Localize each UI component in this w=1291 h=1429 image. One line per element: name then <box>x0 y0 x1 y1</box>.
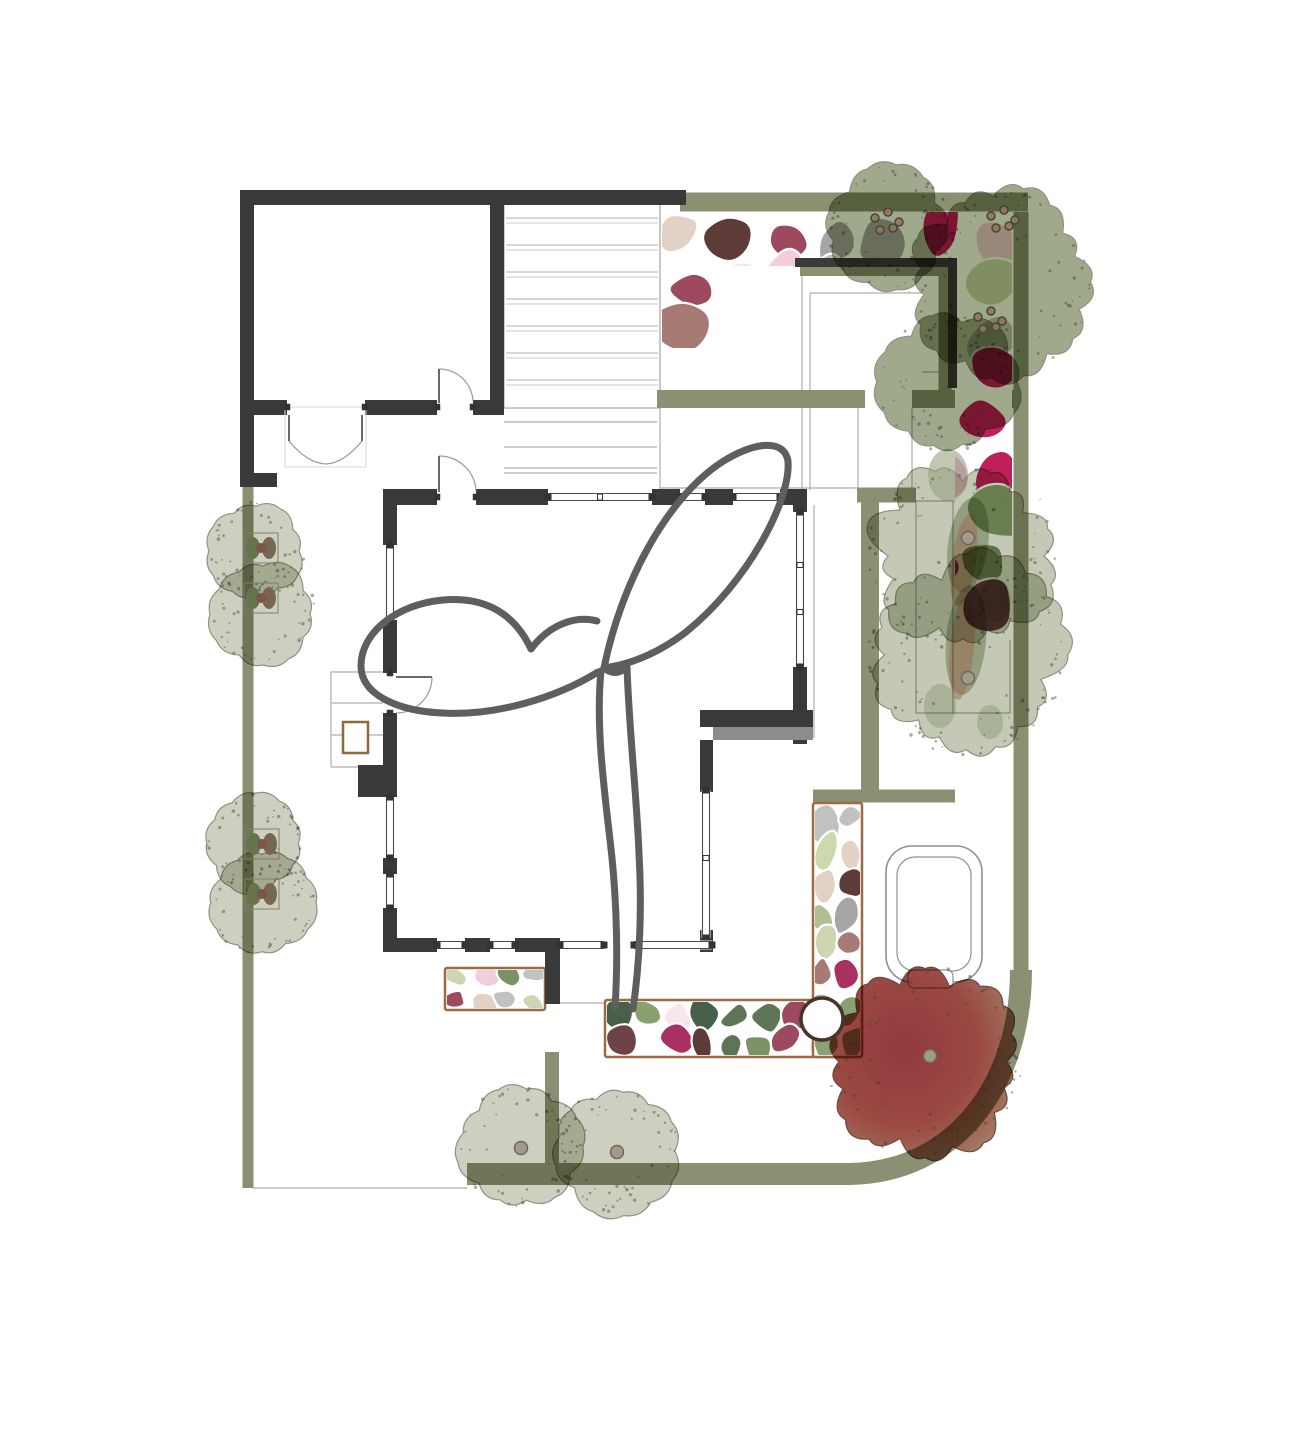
tree-speckle <box>868 666 871 669</box>
tree-speckle <box>964 430 966 432</box>
pebble <box>706 405 762 449</box>
shrub-icon-dot <box>256 593 266 603</box>
window-post <box>702 494 709 501</box>
tree-speckle <box>1053 315 1055 317</box>
tree-speckle <box>904 330 907 333</box>
tree-speckle <box>885 597 888 600</box>
tree-speckle <box>839 260 841 262</box>
tree-speckle <box>960 328 962 330</box>
tree-speckle <box>968 443 972 447</box>
tree-speckle <box>931 477 934 480</box>
pebble <box>815 444 871 490</box>
tree-speckle <box>1015 1056 1018 1059</box>
pebble <box>721 263 773 321</box>
window-post <box>730 494 737 501</box>
tree-speckle <box>904 388 906 390</box>
tree-speckle <box>1008 717 1010 719</box>
tree-speckle <box>232 652 235 655</box>
tree-speckle <box>301 888 303 890</box>
tree-speckle <box>616 1096 618 1098</box>
tree-speckle <box>1022 575 1025 578</box>
tree-speckle <box>508 1202 510 1204</box>
pebble <box>665 410 699 448</box>
tree-speckle <box>894 173 897 176</box>
tree-speckle <box>280 527 282 529</box>
tree-speckle <box>227 581 230 584</box>
tree-speckle <box>974 341 977 344</box>
tree-speckle <box>298 622 300 624</box>
tree-speckle <box>643 1111 645 1113</box>
pebble <box>745 1036 771 1063</box>
tree-speckle <box>984 1122 987 1125</box>
tree-speckle <box>1032 604 1034 606</box>
tree-speckle <box>260 867 263 870</box>
tree-speckle <box>939 210 941 212</box>
tree-speckle <box>998 1037 1000 1039</box>
tree-speckle <box>922 195 925 198</box>
tree-speckle <box>297 593 300 596</box>
tree-speckle <box>1048 612 1050 614</box>
tree-speckle <box>302 594 304 596</box>
tree-speckle <box>896 522 899 525</box>
tree-speckle <box>869 569 871 571</box>
tree-speckle <box>958 474 961 477</box>
tree-speckle <box>501 1092 504 1095</box>
pebble <box>671 547 718 591</box>
tree-speckle <box>956 1130 958 1132</box>
wall <box>240 190 254 487</box>
pebble <box>810 590 867 633</box>
shrub-icon-dot <box>257 839 267 849</box>
tree-speckle <box>939 477 941 479</box>
tree-speckle <box>1055 233 1058 236</box>
tree-speckle <box>272 816 274 818</box>
tree-speckle <box>869 670 872 673</box>
tree-speckle <box>994 1084 996 1086</box>
tree-speckle <box>277 815 280 818</box>
tree-speckle <box>481 1098 484 1101</box>
tree-canopy <box>830 967 1016 1161</box>
tree-speckle <box>975 488 978 491</box>
tree-speckle <box>1052 356 1055 359</box>
tree-speckle <box>289 823 291 825</box>
tree-speckle <box>950 1131 952 1133</box>
tree-speckle <box>591 1108 594 1111</box>
tree-speckle <box>929 414 932 417</box>
tree-speckle <box>631 1187 634 1190</box>
tree-speckle <box>922 735 925 738</box>
tree-speckle <box>934 740 937 743</box>
tree-speckle <box>564 1175 567 1178</box>
canopy-tree-path <box>599 671 616 1007</box>
tree-speckle <box>469 1114 471 1116</box>
tree-speckle <box>980 558 983 561</box>
window-post <box>434 404 441 411</box>
tree-speckle <box>605 1205 607 1207</box>
tree-speckle <box>1010 192 1012 194</box>
tree-speckle <box>218 535 220 537</box>
tree-speckle <box>229 622 231 624</box>
tree-speckle <box>296 856 299 859</box>
berry-dot <box>987 307 995 315</box>
tree-speckle <box>1013 600 1016 603</box>
wall <box>383 713 397 767</box>
tree-speckle <box>992 343 995 346</box>
tree-speckle <box>948 470 949 471</box>
tree-speckle <box>983 1088 986 1091</box>
tree-speckle <box>867 1068 869 1070</box>
garden-plan-canvas <box>0 0 1291 1429</box>
tree-speckle <box>233 612 236 615</box>
tree-speckle <box>220 591 222 593</box>
tree-speckle <box>909 733 912 736</box>
tree-trunk-dot <box>962 672 975 685</box>
tree-speckle <box>970 344 973 347</box>
tree-speckle <box>901 483 903 485</box>
tree-speckle <box>964 566 967 569</box>
window-post <box>703 787 710 794</box>
window-post <box>387 871 394 878</box>
tree-speckle <box>922 289 924 291</box>
tree-speckle <box>871 1073 872 1074</box>
tree-speckle <box>975 1129 978 1132</box>
tree-speckle <box>965 1002 968 1005</box>
window-post <box>387 670 394 677</box>
tree-speckle <box>872 646 875 649</box>
tree-speckle <box>939 426 943 430</box>
tree-speckle <box>969 576 970 577</box>
tree-speckle <box>1005 500 1006 501</box>
tree-speckle <box>308 619 311 622</box>
tree-speckle <box>299 870 302 873</box>
tree-speckle <box>256 503 258 505</box>
tree-speckle <box>1039 336 1040 337</box>
tree-speckle <box>1046 550 1049 553</box>
tree-speckle <box>1039 498 1040 499</box>
tree-speckle <box>923 410 925 412</box>
tree-speckle <box>829 244 832 247</box>
window-post <box>545 494 552 501</box>
tree-speckle <box>921 698 923 700</box>
tree-speckle <box>631 1118 633 1120</box>
pebble <box>719 307 768 356</box>
tree-speckle <box>1088 284 1090 286</box>
canopy-tree-path <box>604 445 788 668</box>
tree-speckle <box>956 318 960 322</box>
tree-speckle <box>242 936 244 938</box>
tree-speckle <box>274 938 276 940</box>
tree-speckle <box>917 1129 920 1132</box>
tree-speckle <box>875 581 876 582</box>
tree-speckle <box>878 1018 880 1020</box>
tree-speckle <box>904 282 906 284</box>
tree-trunk-dot <box>611 1146 624 1159</box>
tree-speckle <box>917 486 920 489</box>
tree-speckle <box>473 1183 475 1185</box>
window-post <box>703 935 710 942</box>
tree-speckle <box>924 284 927 287</box>
tree-speckle <box>893 497 897 501</box>
window-post <box>473 494 480 501</box>
tree-speckle <box>574 1117 577 1120</box>
tree-speckle <box>521 1201 524 1204</box>
tree-speckle <box>891 170 894 173</box>
tree-speckle <box>244 869 247 872</box>
tree-speckle <box>1039 571 1042 574</box>
window-post <box>470 404 477 411</box>
tree-speckle <box>561 1143 563 1145</box>
tree-speckle <box>310 896 312 898</box>
tree-speckle <box>1003 1058 1005 1060</box>
berry-dot <box>992 224 1000 232</box>
tree-speckle <box>914 419 916 421</box>
tree-speckle <box>985 988 987 990</box>
tree-speckle <box>615 1185 618 1188</box>
window-post <box>387 905 394 912</box>
tree-speckle <box>978 428 980 430</box>
tree-speckle <box>833 211 836 214</box>
tree-speckle <box>301 568 303 570</box>
tree-speckle <box>997 1048 999 1050</box>
wall <box>243 473 277 487</box>
tree-speckle <box>1011 1091 1013 1093</box>
tree-speckle <box>296 893 299 896</box>
tree-speckle <box>942 746 944 748</box>
tree-speckle <box>986 345 988 347</box>
tree-speckle <box>623 1186 625 1188</box>
tree-speckle <box>895 493 898 496</box>
tree-speckle <box>928 1106 929 1107</box>
tree-speckle <box>946 1012 949 1015</box>
tree-speckle <box>897 285 899 287</box>
tree-speckle <box>983 1013 985 1015</box>
tree-speckle <box>863 179 866 182</box>
tree-speckle <box>872 538 875 541</box>
tree-speckle <box>973 204 976 207</box>
tree-speckle <box>842 231 846 235</box>
tree-speckle <box>260 514 263 517</box>
tree-speckle <box>845 252 848 255</box>
tree-speckle <box>1033 557 1035 559</box>
berry-dot <box>876 226 884 234</box>
tree-speckle <box>222 910 225 913</box>
pebble <box>818 302 871 352</box>
tree-speckle <box>1048 269 1051 272</box>
tree-speckle <box>932 346 934 348</box>
tree-speckle <box>556 1119 558 1121</box>
tree-speckle <box>1068 304 1071 307</box>
tree-speckle <box>1029 558 1032 561</box>
tree-speckle <box>982 410 984 412</box>
tree-speckle <box>483 1125 485 1127</box>
pebble <box>760 315 817 368</box>
tree-speckle <box>915 189 918 192</box>
tree-speckle <box>930 263 934 267</box>
tree-speckle <box>249 501 252 504</box>
window-mullion <box>797 563 803 568</box>
tree-speckle <box>292 895 294 897</box>
tree-speckle <box>1059 324 1061 326</box>
tree-speckle <box>598 1106 600 1108</box>
tree-speckle <box>526 1188 529 1191</box>
tree-speckle <box>916 1156 918 1158</box>
tree-speckle <box>899 496 902 499</box>
tree-speckle <box>293 550 296 553</box>
tree-speckle <box>1032 546 1034 548</box>
tree-speckle <box>894 706 897 709</box>
tree-speckle <box>927 422 930 425</box>
wall <box>705 489 733 505</box>
tree-speckle <box>987 1079 989 1081</box>
tree-speckle <box>222 607 225 610</box>
tree-speckle <box>896 268 899 271</box>
tree-speckle <box>1033 561 1036 564</box>
tree-speckle <box>928 1113 931 1116</box>
tree-speckle <box>931 210 934 213</box>
tree-speckle <box>287 808 289 810</box>
tree-speckle <box>647 1202 650 1205</box>
tree-speckle <box>973 559 975 561</box>
tree-speckle <box>988 998 990 1000</box>
tree-speckle <box>966 447 969 450</box>
tree-speckle <box>1004 196 1006 198</box>
tree-speckle <box>923 576 925 578</box>
tree-speckle <box>969 1014 971 1016</box>
door-swing-arc <box>326 441 362 464</box>
tree-speckle <box>941 198 944 201</box>
tree-speckle <box>1039 203 1042 206</box>
bench <box>343 722 368 753</box>
tree-speckle <box>1037 352 1040 355</box>
window-post <box>387 855 394 862</box>
pebble <box>833 959 859 990</box>
tree-speckle <box>964 317 966 319</box>
tree-speckle <box>995 561 998 564</box>
tree-speckle <box>1021 699 1024 702</box>
tree-speckle <box>903 653 905 655</box>
tree-speckle <box>888 662 890 664</box>
tree-speckle <box>235 802 238 805</box>
tree-speckle <box>929 447 932 450</box>
tree-speckle <box>302 873 305 876</box>
tree-speckle <box>932 747 935 750</box>
berry-dot <box>889 224 897 232</box>
tree-speckle <box>965 443 968 446</box>
shrub-icon-dot <box>256 543 266 553</box>
berry-dot <box>1000 206 1008 214</box>
tree-speckle <box>258 571 260 573</box>
tree-speckle <box>1083 260 1085 262</box>
tree-speckle <box>867 263 870 266</box>
tree-speckle <box>582 1196 584 1198</box>
tree-speckle <box>211 558 214 561</box>
tree-speckle <box>1004 740 1006 742</box>
tree-speckle <box>1041 696 1044 699</box>
tree-speckle <box>915 725 917 727</box>
tree-speckle <box>992 1065 995 1068</box>
tree-speckle <box>1046 520 1049 523</box>
tree-speckle <box>304 610 306 612</box>
tree-inner-foliage <box>924 684 956 728</box>
tree-speckle <box>267 817 269 819</box>
tree-speckle <box>585 1129 587 1131</box>
tree-speckle <box>297 833 299 835</box>
tree-speckle <box>302 558 305 561</box>
tree-speckle <box>876 688 879 691</box>
window-mullion <box>797 610 803 615</box>
tree-speckle <box>837 1066 840 1069</box>
window-post <box>434 942 441 949</box>
tree-speckle <box>1040 624 1041 625</box>
window-post <box>601 942 608 949</box>
tree-speckle <box>936 209 938 211</box>
tree-speckle <box>1037 708 1039 710</box>
tree-speckle <box>966 423 969 426</box>
tree-speckle <box>936 223 939 226</box>
tree-speckle <box>934 1153 936 1155</box>
berry-dot <box>992 323 1000 331</box>
tree-speckle <box>949 232 951 234</box>
tree-speckle <box>650 1164 653 1167</box>
tree-speckle <box>1024 587 1026 589</box>
tree-speckle <box>868 641 870 643</box>
window-mullion <box>598 494 603 500</box>
tree-inner-foliage <box>977 705 1003 739</box>
tree-speckle <box>247 951 249 953</box>
tree-speckle <box>1017 350 1020 353</box>
tree-speckle <box>218 826 221 829</box>
tree-speckle <box>926 971 929 974</box>
tree-speckle <box>548 1163 549 1164</box>
berry-dot <box>1005 222 1013 230</box>
tree-speckle <box>977 334 980 337</box>
tree-speckle <box>930 482 932 484</box>
tree-speckle <box>218 524 221 527</box>
tree-speckle <box>1016 212 1018 214</box>
tree-speckle <box>875 1021 878 1024</box>
berry-dot <box>884 208 892 216</box>
tree-speckle <box>1072 244 1075 247</box>
tree-speckle <box>844 1091 847 1094</box>
door-swing-arc <box>439 369 473 401</box>
tree-speckle <box>883 517 885 519</box>
tree-speckle <box>883 1103 885 1105</box>
tree-speckle <box>960 232 962 234</box>
window-post <box>797 509 804 516</box>
tree-speckle <box>464 1131 466 1133</box>
tree-speckle <box>657 1114 660 1117</box>
tree-speckle <box>1012 1039 1015 1042</box>
tree-speckle <box>845 226 847 228</box>
tree-speckle <box>222 934 225 937</box>
tree-speckle <box>225 575 227 577</box>
tree-speckle <box>1040 310 1043 313</box>
tree-speckle <box>551 1109 553 1111</box>
tree-speckle <box>933 1137 936 1140</box>
tree-speckle <box>918 731 921 734</box>
tree-speckle <box>894 578 897 581</box>
tree-speckle <box>1056 653 1058 655</box>
tree-speckle <box>229 631 231 633</box>
tree-speckle <box>856 1054 858 1056</box>
tree-speckle <box>943 215 946 218</box>
tree-speckle <box>992 508 995 511</box>
tree-speckle <box>485 1148 487 1150</box>
window-post <box>649 494 656 501</box>
tree-speckle <box>304 925 306 927</box>
tree-speckle <box>269 658 271 660</box>
tree-speckle <box>977 982 979 984</box>
